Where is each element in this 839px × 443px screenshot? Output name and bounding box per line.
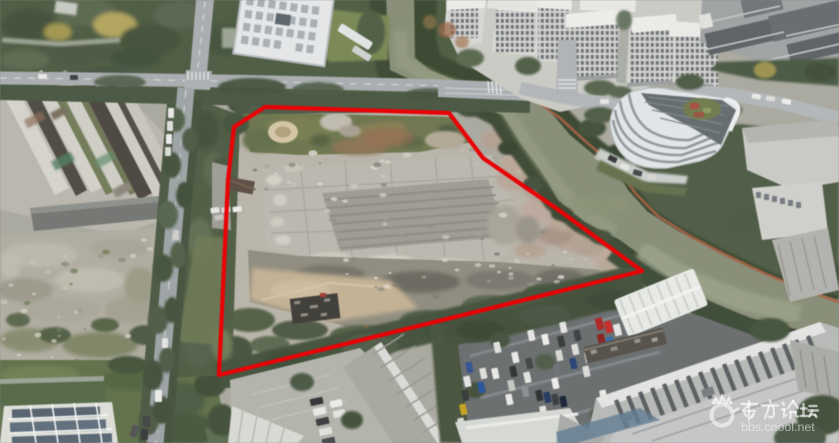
- svg-text:bbs.cnool.net: bbs.cnool.net: [741, 420, 815, 434]
